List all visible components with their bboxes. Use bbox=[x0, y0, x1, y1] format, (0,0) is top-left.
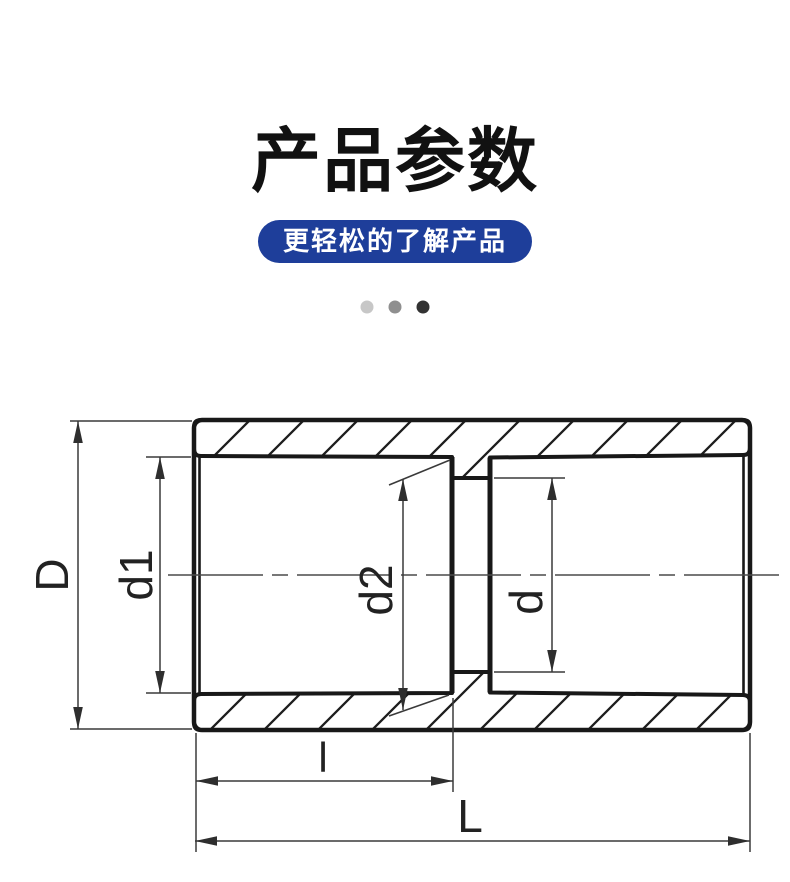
subtitle-text: 更轻松的了解产品 bbox=[283, 226, 507, 256]
bottom-wall-section bbox=[194, 672, 750, 730]
product-parameters-section: 产品参数 更轻松的了解产品 bbox=[0, 0, 790, 882]
dim-label-D: D bbox=[26, 558, 78, 591]
carousel-dot-2[interactable] bbox=[389, 301, 402, 314]
carousel-dot-3[interactable] bbox=[417, 301, 430, 314]
dim-label-L: L bbox=[457, 790, 483, 842]
page-title: 产品参数 bbox=[0, 116, 790, 207]
top-wall-section bbox=[194, 420, 750, 478]
technical-drawing: D d1 d2 d l L bbox=[0, 400, 790, 882]
dim-label-l: l bbox=[318, 734, 327, 781]
dim-label-d1: d1 bbox=[110, 549, 162, 600]
carousel-dots bbox=[359, 299, 431, 315]
subtitle-pill: 更轻松的了解产品 bbox=[258, 220, 532, 263]
dim-label-d: d bbox=[500, 589, 552, 615]
dim-label-d2: d2 bbox=[350, 564, 402, 615]
carousel-dot-1[interactable] bbox=[361, 301, 374, 314]
dimension-arrows bbox=[73, 421, 750, 846]
dimensions bbox=[70, 421, 750, 852]
